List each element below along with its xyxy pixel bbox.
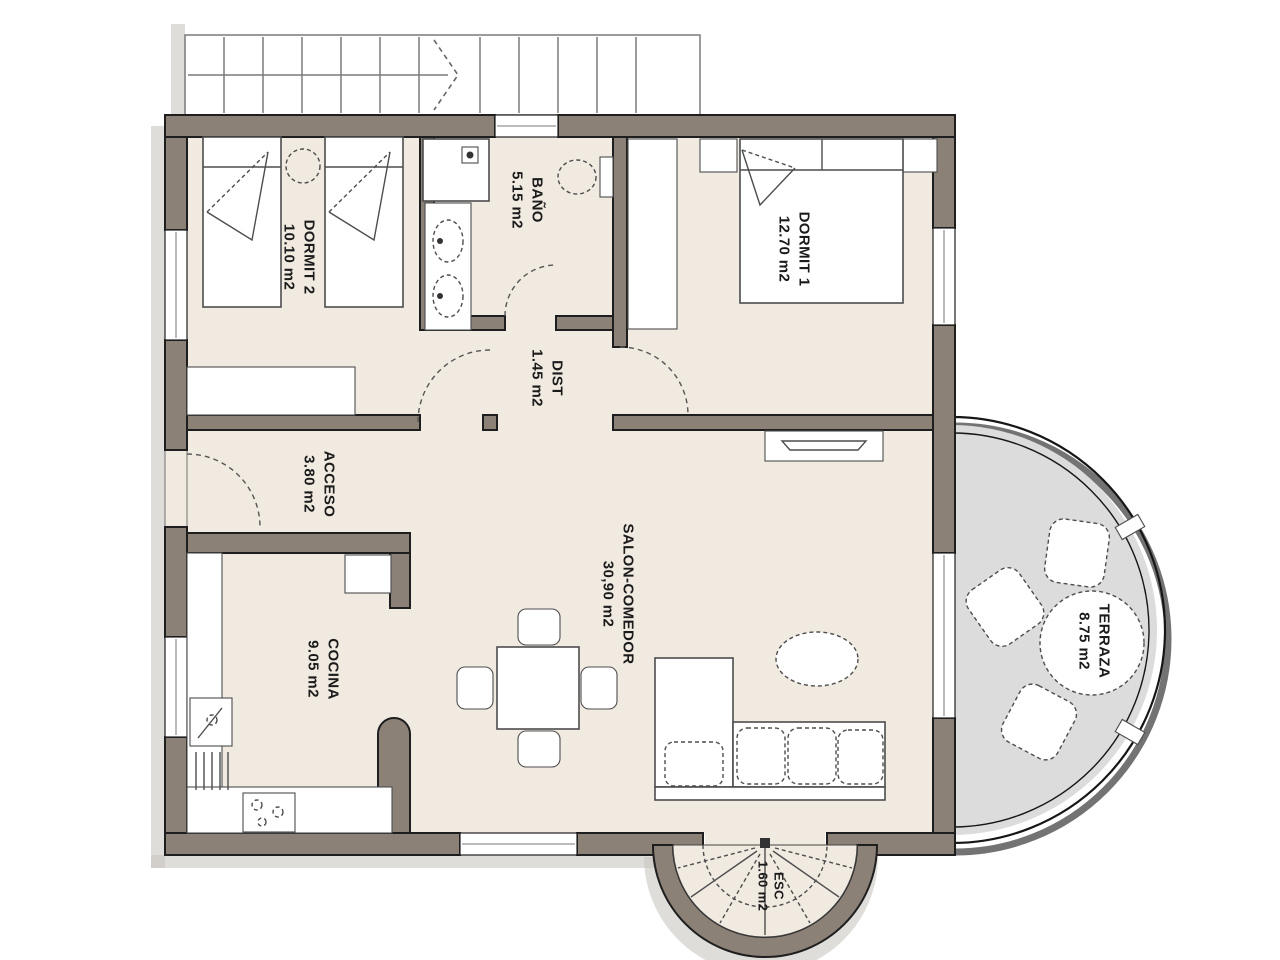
entry-threshold — [165, 450, 187, 527]
floorplan-drawing — [0, 0, 1280, 960]
wardrobe — [628, 139, 677, 329]
terrace — [952, 417, 1168, 852]
cooktop-symbol — [243, 793, 295, 832]
stair-newel-post — [760, 838, 770, 848]
exterior-staircase — [185, 35, 700, 115]
tv-unit — [765, 431, 883, 461]
double-sink-vanity — [425, 203, 471, 330]
bed-symbol — [325, 137, 403, 307]
floor-plan: DORMIT 2 10.10 m2 BAÑO 5.15 m2 DORMIT 1 … — [0, 0, 1280, 960]
wardrobe — [187, 367, 355, 415]
terrace-table — [1040, 591, 1144, 695]
spiral-staircase — [644, 833, 878, 960]
bed-symbol — [203, 137, 281, 307]
coffee-table — [776, 632, 858, 686]
shower-symbol — [423, 139, 489, 201]
